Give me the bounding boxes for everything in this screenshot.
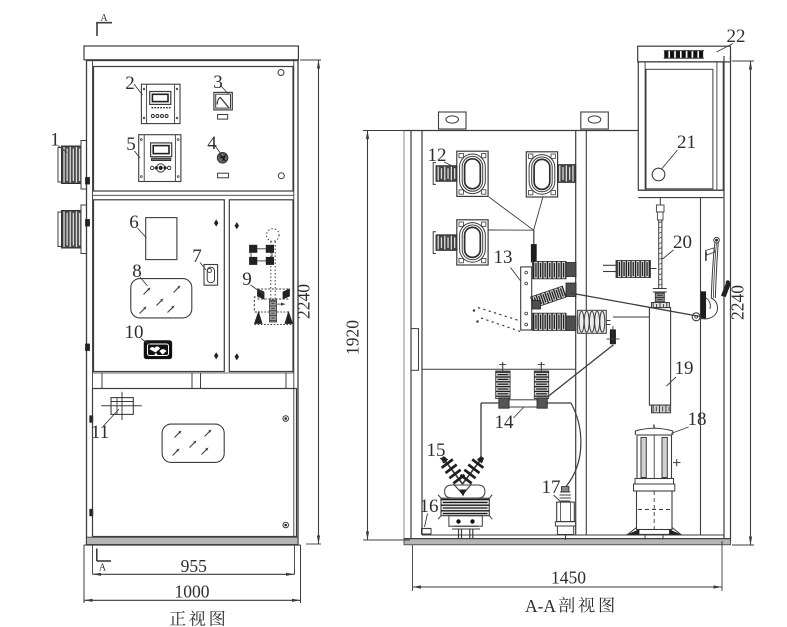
svg-text:8: 8 <box>132 261 142 282</box>
svg-text:15: 15 <box>427 440 446 461</box>
svg-text:A: A <box>100 13 108 24</box>
svg-text:10: 10 <box>125 322 144 343</box>
svg-text:1920: 1920 <box>343 320 363 355</box>
svg-text:5: 5 <box>126 134 136 155</box>
svg-text:19: 19 <box>675 358 694 379</box>
svg-text:1450: 1450 <box>551 568 586 588</box>
svg-text:A-A: A-A <box>525 596 556 616</box>
svg-text:18: 18 <box>688 409 707 430</box>
svg-text:20: 20 <box>673 232 692 253</box>
svg-text:22: 22 <box>727 26 746 47</box>
svg-text:9: 9 <box>242 269 252 290</box>
svg-text:6: 6 <box>129 212 139 233</box>
svg-text:2: 2 <box>125 73 135 94</box>
svg-text:1000: 1000 <box>175 582 210 602</box>
svg-text:12: 12 <box>428 145 447 166</box>
svg-text:16: 16 <box>420 496 439 517</box>
svg-text:14: 14 <box>495 412 515 433</box>
svg-text:21: 21 <box>677 132 696 153</box>
svg-text:A: A <box>99 563 107 574</box>
svg-text:7: 7 <box>192 246 202 267</box>
svg-text:13: 13 <box>494 247 513 268</box>
svg-text:3: 3 <box>213 72 223 93</box>
svg-text:2240: 2240 <box>728 285 748 320</box>
svg-text:11: 11 <box>91 422 109 443</box>
svg-text:2240: 2240 <box>294 284 314 319</box>
svg-text:955: 955 <box>181 556 208 576</box>
svg-text:4: 4 <box>207 133 217 154</box>
svg-text:17: 17 <box>542 477 561 498</box>
svg-text:1: 1 <box>50 130 60 151</box>
